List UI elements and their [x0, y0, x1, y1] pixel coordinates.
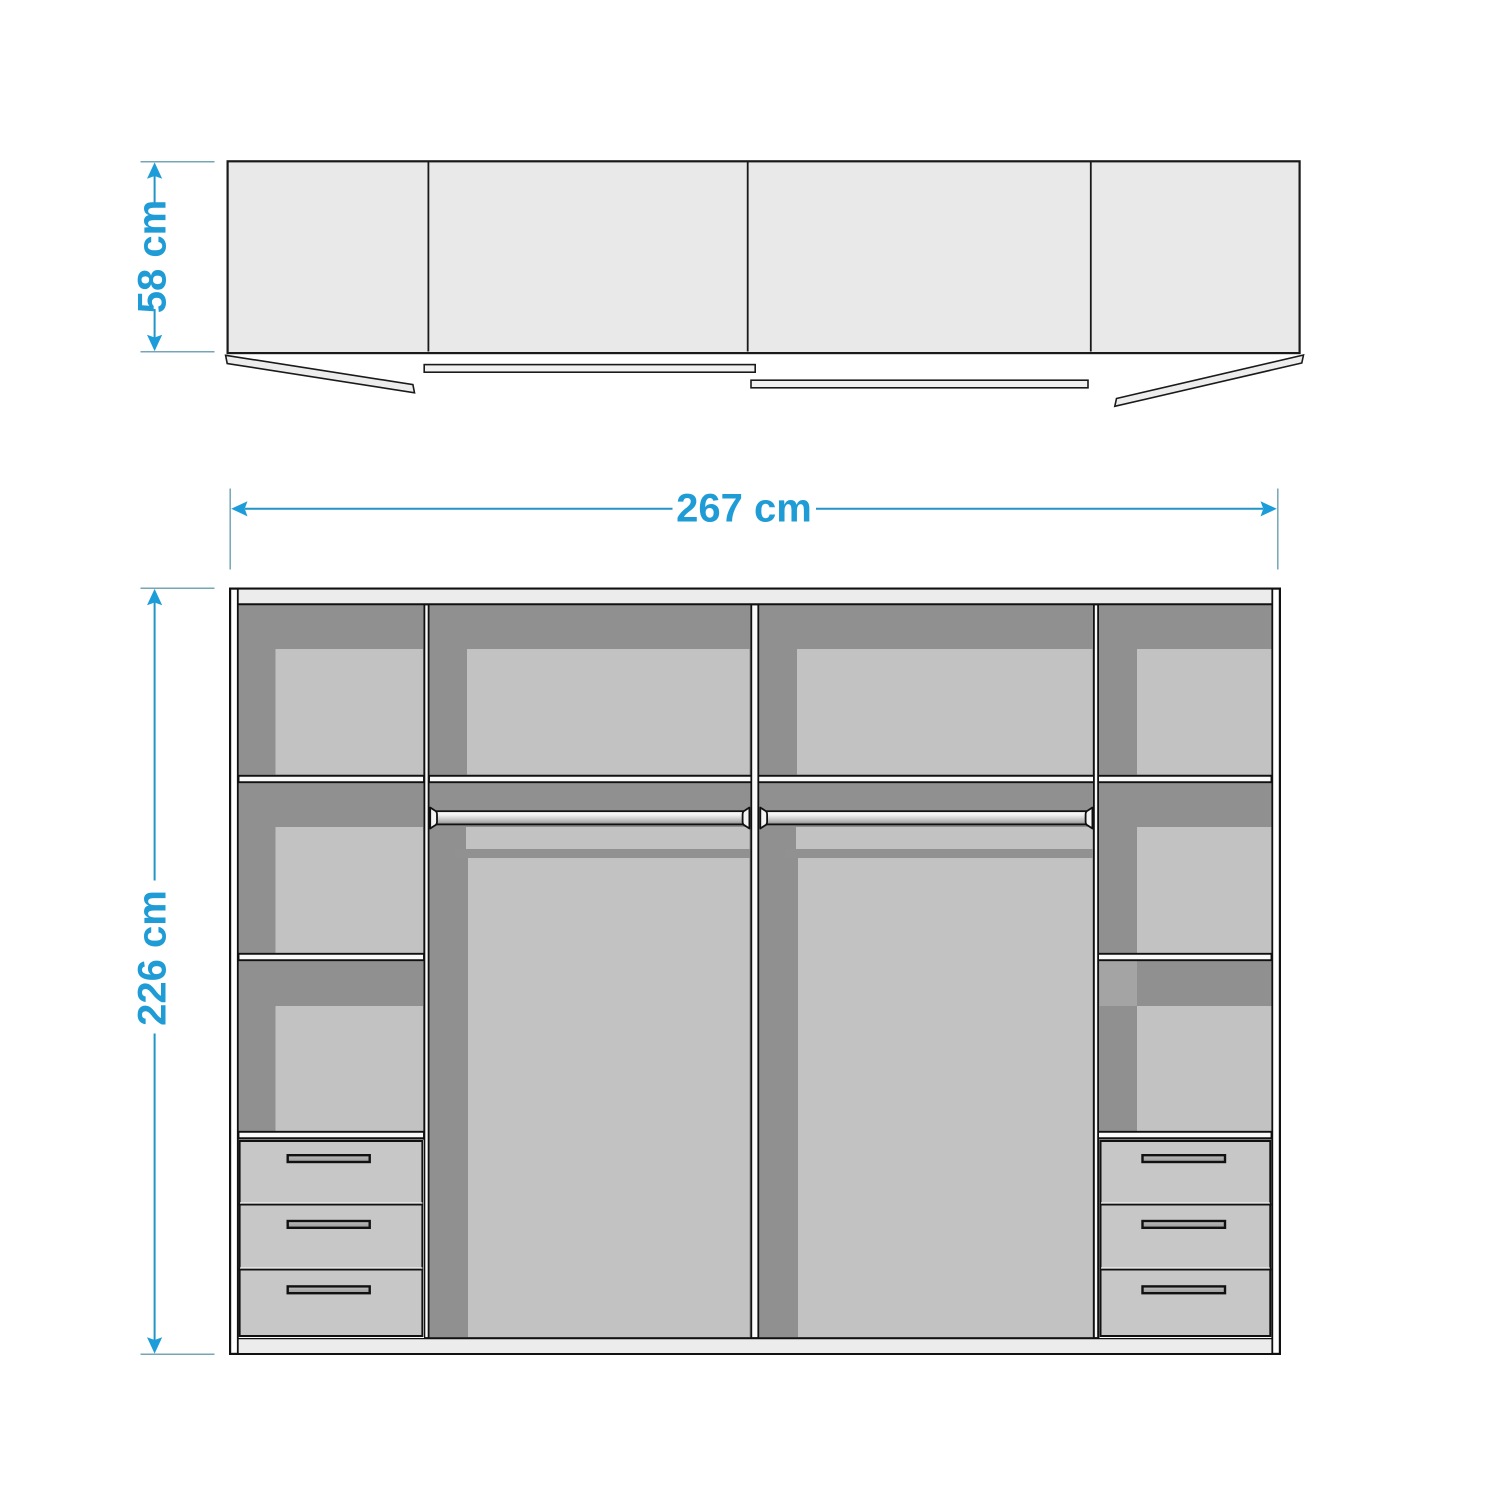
svg-text:267 cm: 267 cm — [676, 487, 812, 531]
svg-text:58 cm: 58 cm — [131, 200, 175, 313]
svg-text:226 cm: 226 cm — [131, 890, 175, 1026]
